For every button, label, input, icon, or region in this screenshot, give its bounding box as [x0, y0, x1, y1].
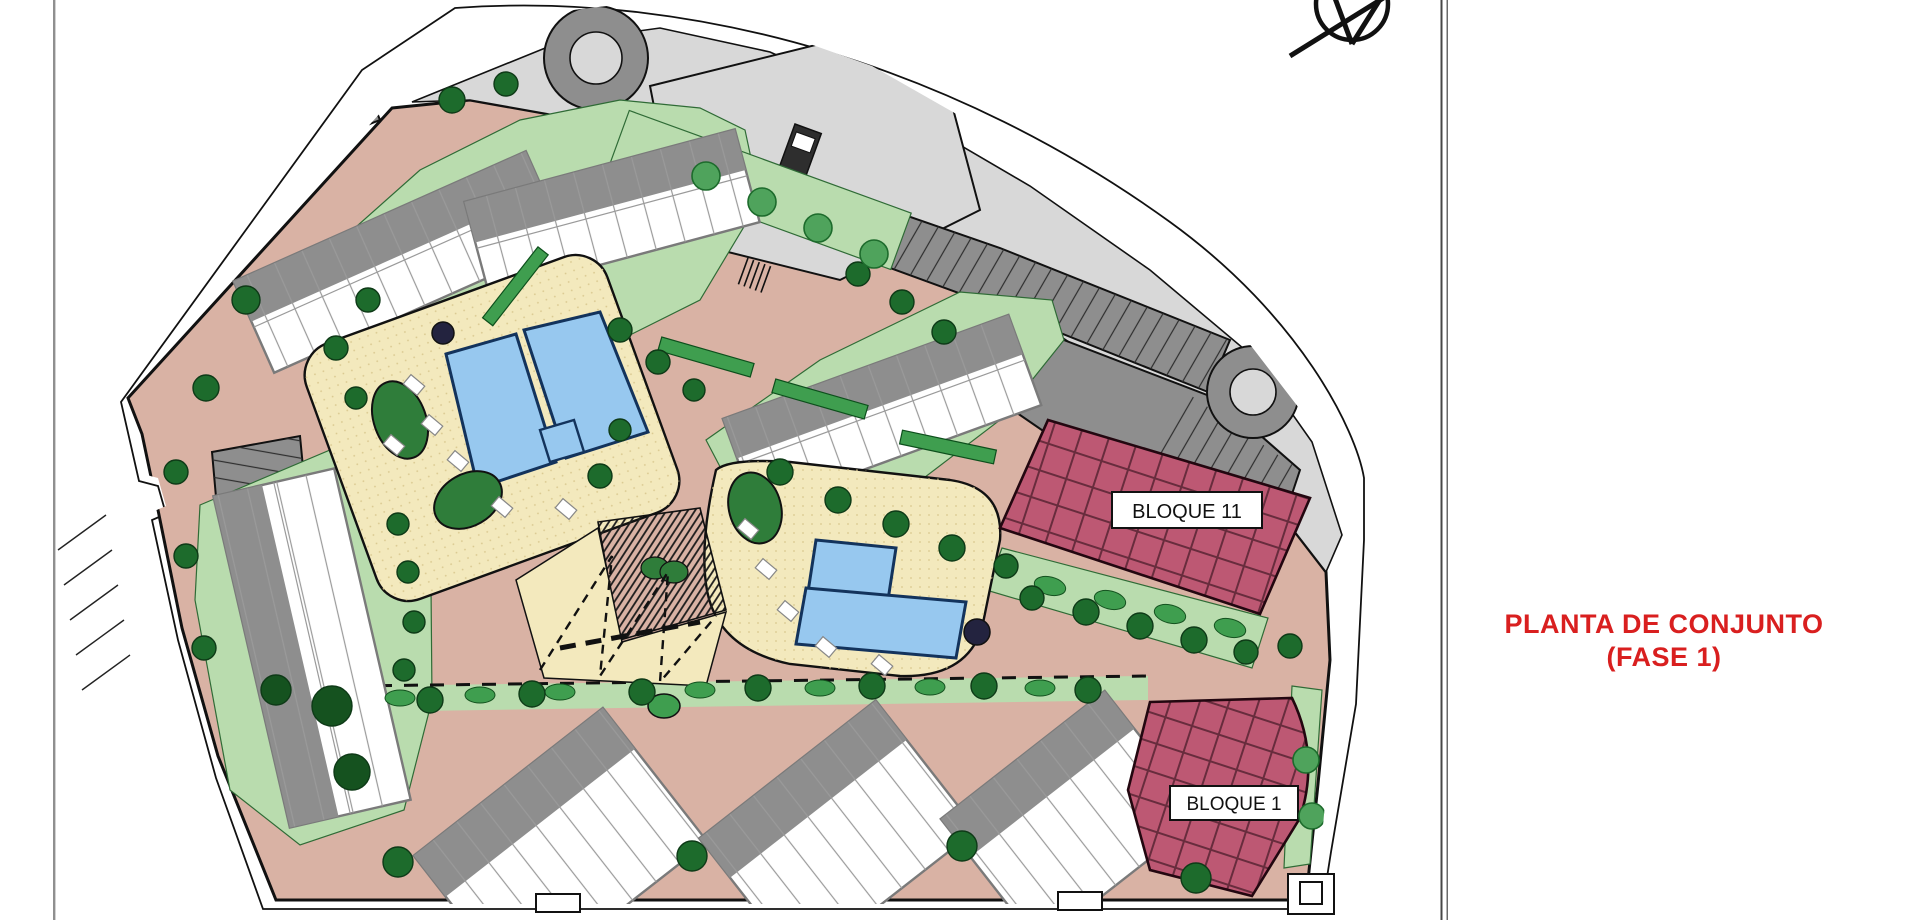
palm-tree — [748, 188, 776, 216]
tree — [1073, 599, 1099, 625]
tree — [164, 460, 188, 484]
tree — [324, 336, 348, 360]
sheet-title-line1: PLANTA DE CONJUNTO — [1478, 608, 1850, 641]
tree — [608, 318, 632, 342]
tree — [883, 511, 909, 537]
tree — [393, 659, 415, 681]
palm-tree — [1299, 803, 1325, 829]
palm-tree — [804, 214, 832, 242]
tree — [383, 847, 413, 877]
roundabout-west — [544, 6, 648, 110]
bloque-11-label: BLOQUE 11 — [1132, 501, 1242, 523]
spa-circle — [432, 322, 454, 344]
site-plan-drawing: BLOQUE 11 BLOQUE 1 — [0, 0, 1920, 920]
tree — [825, 487, 851, 513]
tree — [387, 513, 409, 535]
utility-box-southeast — [1288, 874, 1334, 914]
tree — [306, 124, 330, 148]
tree — [174, 544, 198, 568]
tree — [683, 379, 705, 401]
tree — [609, 419, 631, 441]
tree — [890, 290, 914, 314]
tree — [403, 611, 425, 633]
tree — [994, 554, 1018, 578]
site-interior: BLOQUE 11 BLOQUE 1 — [128, 6, 1342, 920]
tree — [519, 681, 545, 707]
palm-tree — [1293, 747, 1319, 773]
sheet-title-line2: (FASE 1) — [1478, 641, 1850, 674]
boundary-tick-marks — [58, 515, 130, 690]
tree — [1075, 677, 1101, 703]
spa-circle — [964, 619, 990, 645]
tree — [1181, 627, 1207, 653]
compass-north-icon — [1290, 0, 1422, 56]
bloque-1-label: BLOQUE 1 — [1186, 794, 1281, 815]
tree — [356, 288, 380, 312]
tree — [767, 459, 793, 485]
tree — [193, 375, 219, 401]
palm-tree — [860, 240, 888, 268]
tree — [1234, 640, 1258, 664]
tree — [971, 673, 997, 699]
tree — [397, 561, 419, 583]
tree — [1278, 634, 1302, 658]
tree — [1181, 863, 1211, 893]
tree — [629, 679, 655, 705]
tree — [939, 535, 965, 561]
tree — [439, 87, 465, 113]
palm-cluster — [334, 754, 370, 790]
tree — [859, 673, 885, 699]
tree — [345, 387, 367, 409]
tree — [232, 286, 260, 314]
sheet-title: PLANTA DE CONJUNTO (FASE 1) — [1478, 608, 1850, 674]
roundabout-east — [1207, 346, 1299, 438]
tree — [1020, 586, 1044, 610]
tree — [417, 687, 443, 713]
tree — [932, 320, 956, 344]
palm-tree — [692, 162, 720, 190]
architectural-site-plan: BLOQUE 11 BLOQUE 1 — [0, 0, 1920, 920]
tree — [745, 675, 771, 701]
tree — [249, 165, 275, 191]
sheet-border-left — [53, 0, 55, 920]
sheet-border-right-outer — [1441, 0, 1443, 920]
palm-cluster — [261, 675, 291, 705]
tree — [192, 636, 216, 660]
sheet-border-right-inner — [1447, 0, 1449, 920]
tree — [494, 72, 518, 96]
tree — [646, 350, 670, 374]
palm-cluster — [312, 686, 352, 726]
tree — [588, 464, 612, 488]
tree — [677, 841, 707, 871]
tree — [947, 831, 977, 861]
tree — [205, 182, 231, 208]
tree — [1127, 613, 1153, 639]
pool-deck-central — [704, 461, 1000, 676]
